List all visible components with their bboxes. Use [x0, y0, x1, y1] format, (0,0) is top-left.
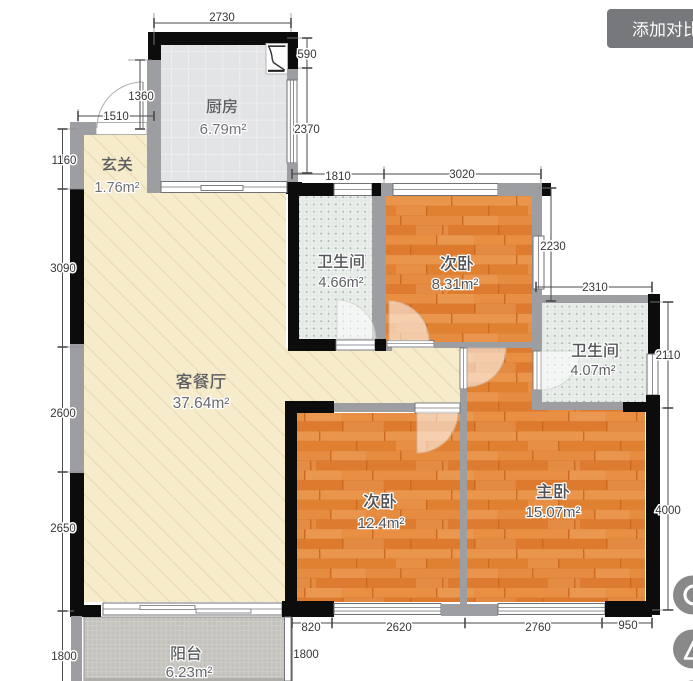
svg-text:590: 590 — [297, 49, 316, 61]
svg-text:1160: 1160 — [52, 155, 77, 167]
svg-text:2370: 2370 — [294, 124, 320, 136]
svg-text:1810: 1810 — [325, 171, 351, 183]
svg-text:2110: 2110 — [656, 350, 681, 362]
svg-text:1510: 1510 — [103, 111, 129, 123]
svg-text:1360: 1360 — [128, 91, 154, 103]
svg-text:3090: 3090 — [50, 263, 76, 275]
svg-text:4.07m²: 4.07m² — [570, 363, 615, 379]
svg-text:2650: 2650 — [50, 523, 76, 535]
svg-text:6.23m²: 6.23m² — [166, 664, 213, 681]
svg-text:2620: 2620 — [386, 622, 412, 634]
svg-text:1.76m²: 1.76m² — [94, 180, 139, 196]
svg-text:2600: 2600 — [50, 408, 76, 420]
svg-text:820: 820 — [301, 622, 320, 634]
svg-text:8.31m²: 8.31m² — [432, 276, 479, 293]
svg-text:15.07m²: 15.07m² — [525, 504, 580, 521]
svg-text:4000: 4000 — [655, 505, 681, 517]
svg-text:2760: 2760 — [525, 622, 551, 634]
svg-text:12.4m²: 12.4m² — [358, 515, 405, 532]
svg-text:6.79m²: 6.79m² — [200, 121, 247, 138]
svg-text:2730: 2730 — [209, 12, 235, 24]
svg-text:950: 950 — [618, 620, 637, 632]
svg-text:4.66m²: 4.66m² — [318, 275, 363, 291]
svg-text:3020: 3020 — [449, 169, 475, 181]
svg-text:2310: 2310 — [582, 282, 608, 294]
svg-text:2230: 2230 — [540, 241, 566, 253]
svg-text:37.64m²: 37.64m² — [173, 395, 230, 412]
svg-text:1800: 1800 — [293, 649, 319, 661]
svg-text:1800: 1800 — [51, 651, 77, 663]
